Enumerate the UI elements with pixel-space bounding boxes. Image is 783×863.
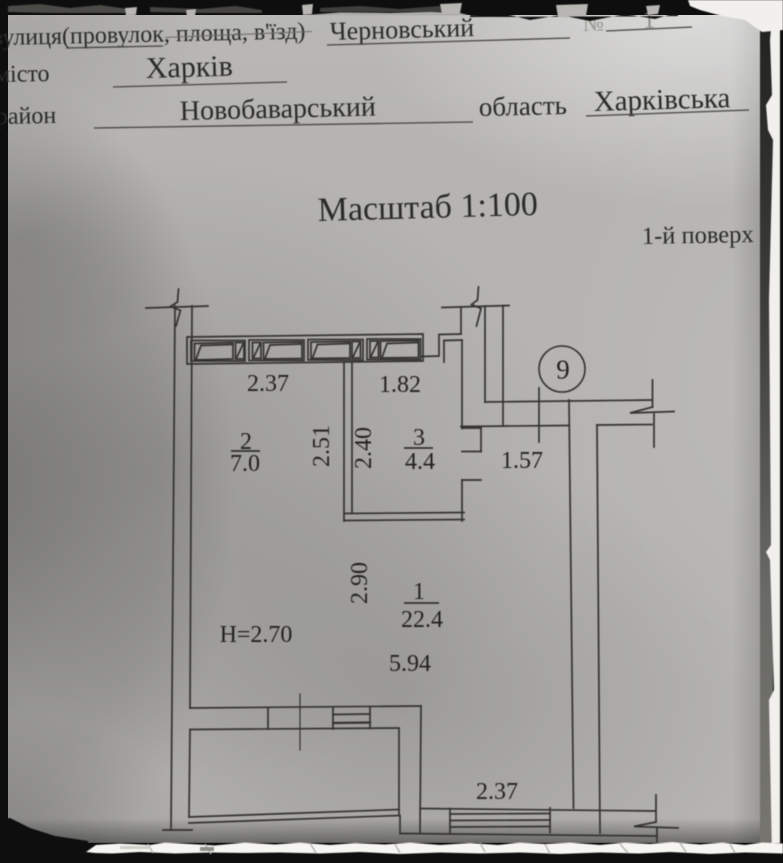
svg-text:район: район (0, 103, 57, 130)
svg-text:1: 1 (413, 579, 425, 605)
svg-text:7.0: 7.0 (230, 451, 260, 477)
svg-text:Масштаб 1:100: Масштаб 1:100 (317, 186, 538, 229)
svg-text:4.4: 4.4 (405, 449, 435, 475)
svg-text:H=2.70: H=2.70 (220, 622, 293, 648)
svg-text:1.57: 1.57 (501, 448, 543, 474)
svg-text:2.37: 2.37 (476, 779, 518, 805)
svg-text:2.51: 2.51 (309, 425, 335, 467)
svg-text:місто: місто (0, 61, 50, 88)
svg-text:2.90: 2.90 (347, 562, 373, 604)
svg-text:2.37: 2.37 (247, 371, 289, 397)
svg-text:2.40: 2.40 (351, 427, 377, 469)
svg-text:1-й поверх: 1-й поверх (642, 221, 754, 250)
svg-text:22.4: 22.4 (401, 607, 443, 633)
svg-text:Новобаварський: Новобаварський (179, 92, 376, 127)
svg-text:Харків: Харків (145, 50, 233, 85)
svg-text:3: 3 (413, 425, 425, 451)
svg-text:9: 9 (556, 355, 570, 385)
svg-text:1.82: 1.82 (379, 372, 421, 398)
svg-text:область: область (478, 90, 567, 122)
svg-text:5.94: 5.94 (389, 651, 431, 677)
